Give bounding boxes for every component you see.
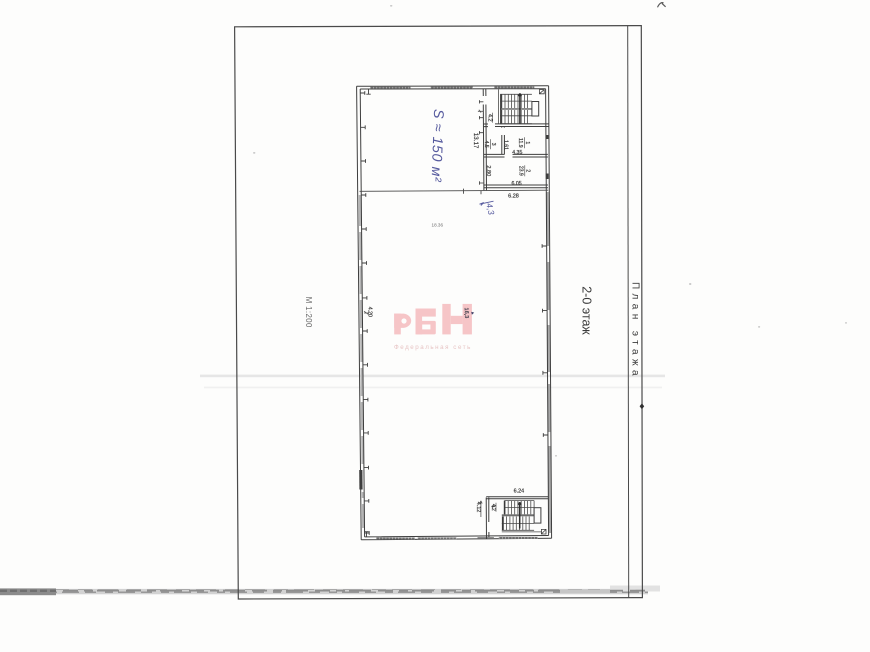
svg-text:4.20: 4.20 <box>366 307 372 317</box>
svg-text:2: 2 <box>524 169 530 172</box>
svg-text:13.17: 13.17 <box>472 133 479 149</box>
svg-text:4.5: 4.5 <box>483 141 489 148</box>
svg-text:3: 3 <box>490 143 496 146</box>
svg-text:4,3: 4,3 <box>484 202 496 216</box>
svg-text:23.9: 23.9 <box>518 166 524 176</box>
svg-text:16,3: 16,3 <box>463 308 469 319</box>
svg-text:S ≈ 150 м²: S ≈ 150 м² <box>428 109 447 183</box>
svg-text:2.80: 2.80 <box>485 165 491 176</box>
svg-text:6.05: 6.05 <box>512 181 522 187</box>
svg-text:4.35: 4.35 <box>512 150 522 156</box>
svg-text:4.12: 4.12 <box>475 502 481 513</box>
svg-text:6.28: 6.28 <box>508 193 519 199</box>
svg-text:2-0 этаж: 2-0 этаж <box>580 286 594 335</box>
svg-text:М 1:200: М 1:200 <box>304 297 313 328</box>
svg-text:4.2: 4.2 <box>486 114 492 122</box>
svg-text:4.2: 4.2 <box>490 504 496 511</box>
svg-text:6.24: 6.24 <box>514 489 525 495</box>
svg-text:Федеральная сеть: Федеральная сеть <box>394 344 472 351</box>
svg-text:План этажа: План этажа <box>630 282 641 380</box>
svg-text:11.9: 11.9 <box>517 138 523 148</box>
svg-text:1.61: 1.61 <box>503 140 509 150</box>
svg-text:18.36: 18.36 <box>432 222 444 227</box>
svg-text:1: 1 <box>524 141 530 144</box>
